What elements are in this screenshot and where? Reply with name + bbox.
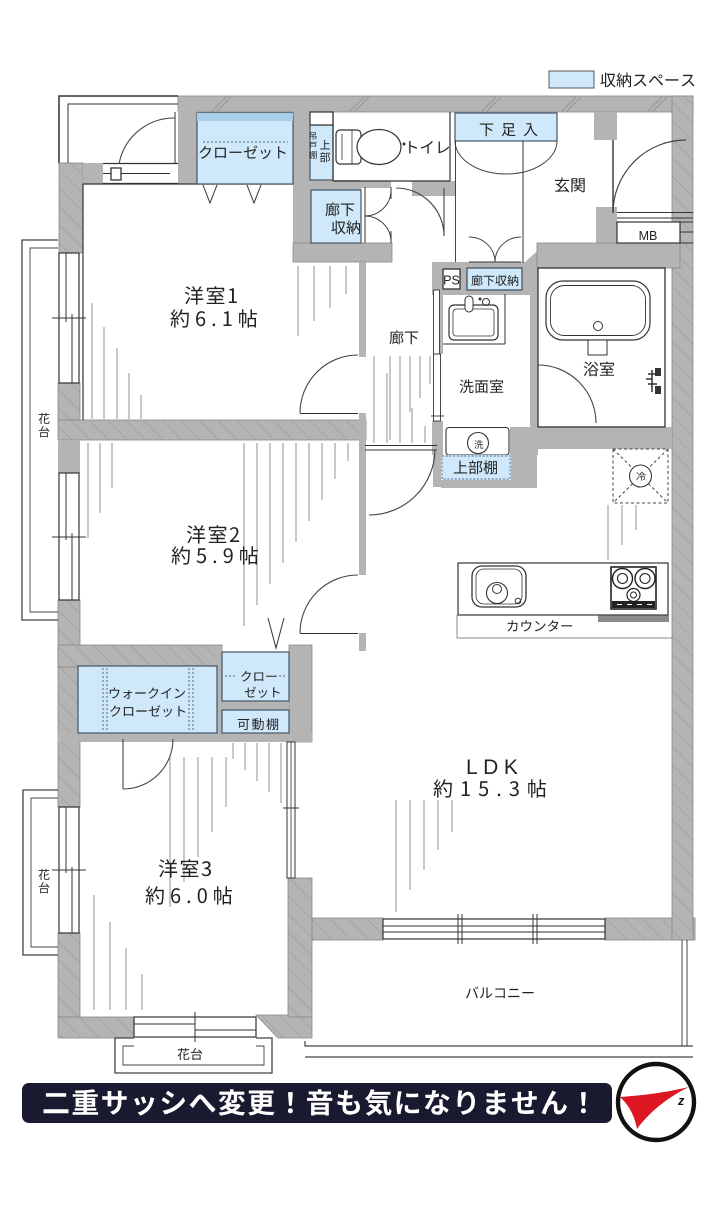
svg-text:LDK: LDK — [466, 756, 523, 779]
svg-text:z: z — [677, 1094, 685, 1108]
svg-text:PS: PS — [443, 274, 460, 288]
svg-text:MB: MB — [639, 229, 658, 243]
